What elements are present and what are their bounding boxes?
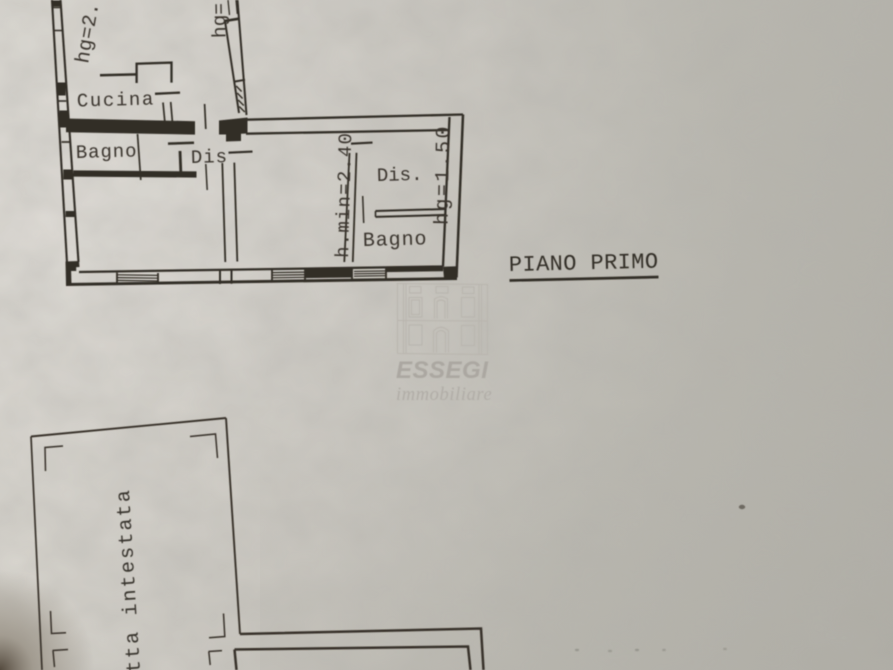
svg-text:Dis.: Dis.: [377, 164, 423, 187]
svg-text:Bagno: Bagno: [363, 228, 428, 253]
svg-text:hg=: hg=: [209, 3, 232, 38]
svg-text:PIANO PRIMO: PIANO PRIMO: [509, 250, 659, 278]
svg-text:immobiliare: immobiliare: [396, 385, 492, 405]
svg-text:Dis: Dis: [191, 146, 229, 169]
svg-text:hg=1.50: hg=1.50: [432, 124, 457, 225]
svg-text:Cucina: Cucina: [77, 88, 156, 112]
svg-text:ESSEGI: ESSEGI: [396, 357, 489, 384]
svg-text:h.min=2.40: h.min=2.40: [332, 132, 357, 259]
svg-text:Bagno: Bagno: [76, 140, 138, 164]
